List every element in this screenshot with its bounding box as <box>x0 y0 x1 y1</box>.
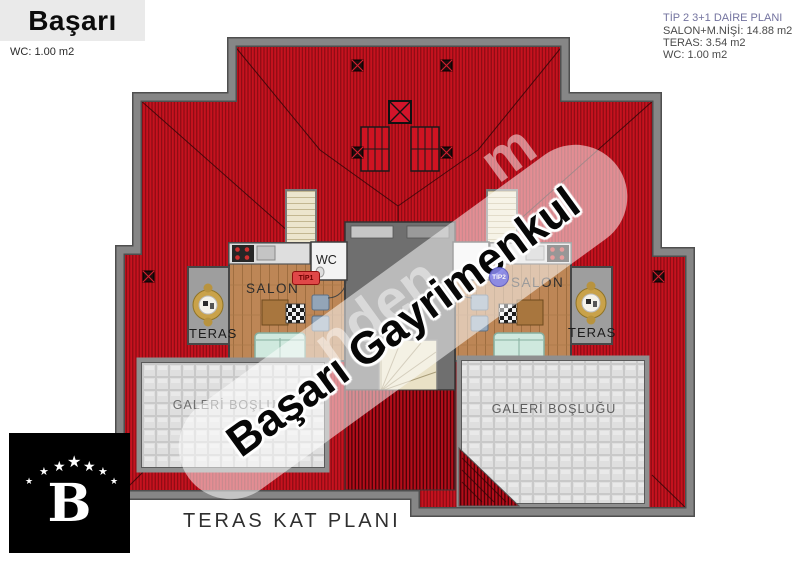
teras-left-label: TERAS <box>189 326 237 341</box>
agency-logo: ★ ★ ★ ★ ★ ★ ★ B <box>9 433 130 553</box>
gallery-right-label: GALERİ BOŞLUĞU <box>477 402 631 416</box>
teras-right-label: TERAS <box>568 325 616 340</box>
logo-letter: B <box>9 473 130 534</box>
sink-icon <box>257 246 275 260</box>
rug <box>286 304 305 323</box>
stove-icon <box>232 245 254 262</box>
tip1-badge: TİP1 <box>292 271 320 285</box>
floor-plan-page: SALON SALON WC TERAS TERAS GALERİ BOŞLUĞ… <box>0 0 800 566</box>
gallery-right <box>459 358 647 506</box>
coffee-table <box>517 300 543 325</box>
tip2-badge: TİP2 <box>489 267 509 287</box>
star-icon: ★ <box>83 459 96 473</box>
star-icon: ★ <box>53 459 66 473</box>
wc-label: WC <box>316 253 337 267</box>
star-icon: ★ <box>67 455 81 471</box>
plan-caption: TERAS KAT PLANI <box>183 510 401 533</box>
coffee-table <box>262 300 288 325</box>
